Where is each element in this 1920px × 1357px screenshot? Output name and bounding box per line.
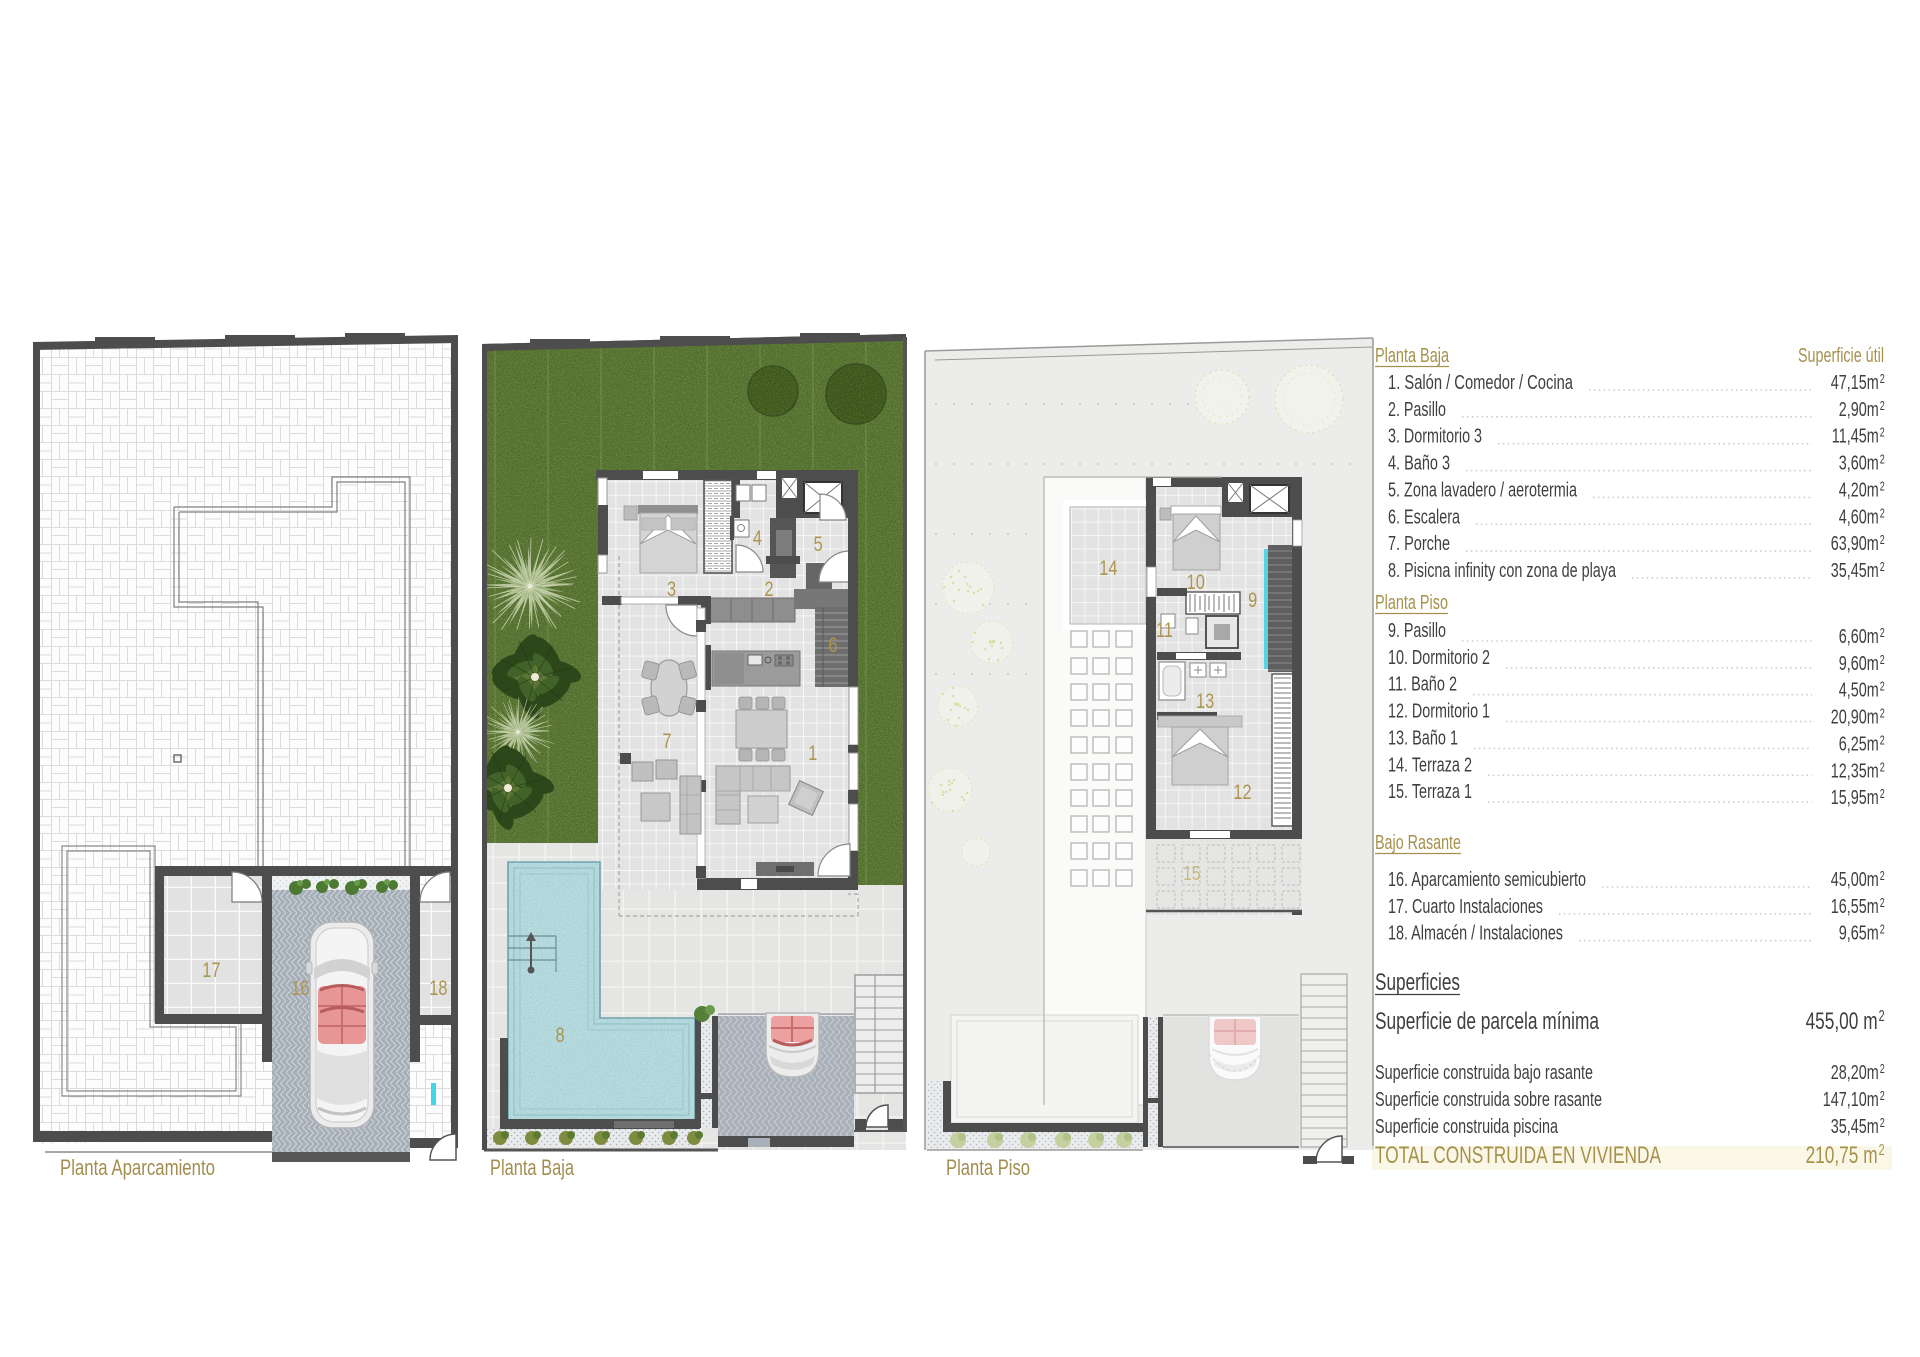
svg-text:7: 7 xyxy=(662,729,671,752)
svg-text:8. Pisicna infinity con zona d: 8. Pisicna infinity con zona de playa xyxy=(1388,560,1617,582)
svg-text:28,20m: 28,20m xyxy=(1831,1062,1879,1084)
svg-text:16,55m: 16,55m xyxy=(1831,896,1879,918)
svg-text:4,50m: 4,50m xyxy=(1839,680,1879,702)
svg-text:17: 17 xyxy=(202,958,220,981)
svg-text:2: 2 xyxy=(1880,1061,1885,1076)
svg-text:Planta Baja: Planta Baja xyxy=(1375,345,1450,367)
svg-text:14. Terraza 2: 14. Terraza 2 xyxy=(1388,754,1472,776)
svg-text:1. Salón / Comedor / Cocina: 1. Salón / Comedor / Cocina xyxy=(1388,372,1574,394)
svg-text:2: 2 xyxy=(1880,922,1885,937)
svg-text:35,45m: 35,45m xyxy=(1831,1116,1879,1138)
svg-text:3. Dormitorio 3: 3. Dormitorio 3 xyxy=(1388,426,1482,448)
svg-text:2: 2 xyxy=(1880,532,1885,547)
svg-text:TOTAL CONSTRUIDA EN VIVIENDA: TOTAL CONSTRUIDA EN VIVIENDA xyxy=(1375,1142,1661,1169)
svg-text:2: 2 xyxy=(1880,759,1885,774)
svg-text:2: 2 xyxy=(1880,679,1885,694)
svg-text:9,65m: 9,65m xyxy=(1839,923,1879,945)
svg-text:9: 9 xyxy=(1248,588,1257,611)
svg-text:2: 2 xyxy=(1880,425,1885,440)
svg-text:4,20m: 4,20m xyxy=(1839,479,1879,501)
svg-text:18. Almacén / Instalaciones: 18. Almacén / Instalaciones xyxy=(1388,923,1563,945)
svg-text:2: 2 xyxy=(1879,1142,1885,1159)
svg-text:16. Aparcamiento semicubierto: 16. Aparcamiento semicubierto xyxy=(1388,869,1586,891)
svg-text:Bajo Rasante: Bajo Rasante xyxy=(1375,832,1461,854)
svg-text:2: 2 xyxy=(1880,895,1885,910)
svg-text:4,60m: 4,60m xyxy=(1839,506,1879,528)
svg-text:2: 2 xyxy=(1880,398,1885,413)
svg-text:12. Dormitorio 1: 12. Dormitorio 1 xyxy=(1388,701,1490,723)
svg-text:18: 18 xyxy=(429,976,447,999)
svg-text:13: 13 xyxy=(1196,689,1214,712)
svg-text:3,60m: 3,60m xyxy=(1839,453,1879,475)
svg-text:63,90m: 63,90m xyxy=(1831,533,1879,555)
svg-text:6,60m: 6,60m xyxy=(1839,626,1879,648)
svg-text:45,00m: 45,00m xyxy=(1831,869,1879,891)
svg-text:13. Baño 1: 13. Baño 1 xyxy=(1388,727,1458,749)
svg-text:2: 2 xyxy=(1880,868,1885,883)
svg-text:12,35m: 12,35m xyxy=(1831,760,1879,782)
svg-text:16: 16 xyxy=(291,976,309,999)
svg-text:3: 3 xyxy=(667,577,676,600)
svg-text:35,45m: 35,45m xyxy=(1831,560,1879,582)
svg-text:11,45m: 11,45m xyxy=(1832,426,1879,448)
svg-text:2: 2 xyxy=(1880,1115,1885,1130)
svg-text:2: 2 xyxy=(1880,371,1885,386)
svg-text:147,10m: 147,10m xyxy=(1823,1089,1879,1111)
svg-text:17. Cuarto Instalaciones: 17. Cuarto Instalaciones xyxy=(1388,896,1543,918)
svg-text:47,15m: 47,15m xyxy=(1831,372,1879,394)
svg-text:455,00 m: 455,00 m xyxy=(1806,1008,1878,1035)
svg-text:2: 2 xyxy=(1880,732,1885,747)
svg-text:2. Pasillo: 2. Pasillo xyxy=(1388,399,1446,421)
svg-text:2: 2 xyxy=(1880,559,1885,574)
svg-text:15,95m: 15,95m xyxy=(1831,787,1879,809)
svg-text:2,90m: 2,90m xyxy=(1839,399,1879,421)
svg-text:11. Baño 2: 11. Baño 2 xyxy=(1388,674,1457,696)
svg-text:2: 2 xyxy=(765,577,774,600)
svg-text:12: 12 xyxy=(1233,780,1251,803)
svg-text:2: 2 xyxy=(1879,1008,1885,1025)
svg-text:9. Pasillo: 9. Pasillo xyxy=(1388,620,1446,642)
svg-text:10. Dormitorio 2: 10. Dormitorio 2 xyxy=(1388,647,1490,669)
svg-text:6: 6 xyxy=(828,633,837,656)
svg-text:Planta Baja: Planta Baja xyxy=(490,1155,575,1180)
svg-text:2: 2 xyxy=(1880,452,1885,467)
svg-text:6,25m: 6,25m xyxy=(1839,733,1879,755)
svg-text:4: 4 xyxy=(753,526,762,549)
svg-text:6. Escalera: 6. Escalera xyxy=(1388,506,1461,528)
svg-text:20,90m: 20,90m xyxy=(1831,707,1879,729)
svg-text:Planta Piso: Planta Piso xyxy=(1375,592,1448,614)
svg-text:2: 2 xyxy=(1880,505,1885,520)
svg-text:2: 2 xyxy=(1880,478,1885,493)
svg-text:Superficie construida bajo ras: Superficie construida bajo rasante xyxy=(1375,1062,1593,1084)
svg-text:Planta Aparcamiento: Planta Aparcamiento xyxy=(60,1155,215,1180)
svg-text:2: 2 xyxy=(1880,652,1885,667)
svg-text:2: 2 xyxy=(1880,625,1885,640)
svg-text:1: 1 xyxy=(808,741,817,764)
svg-text:Planta Piso: Planta Piso xyxy=(946,1155,1030,1180)
svg-text:210,75 m: 210,75 m xyxy=(1806,1142,1878,1169)
svg-text:Superficie útil: Superficie útil xyxy=(1798,345,1884,367)
svg-text:14: 14 xyxy=(1099,556,1117,579)
svg-text:Superficies: Superficies xyxy=(1375,969,1460,996)
svg-text:Superficie construida piscina: Superficie construida piscina xyxy=(1375,1116,1559,1138)
svg-text:15. Terraza 1: 15. Terraza 1 xyxy=(1388,781,1472,803)
svg-text:2: 2 xyxy=(1880,786,1885,801)
svg-text:10: 10 xyxy=(1187,570,1205,593)
svg-text:11: 11 xyxy=(1156,618,1173,641)
svg-text:8: 8 xyxy=(555,1023,564,1046)
svg-text:5. Zona lavadero / aerotermia: 5. Zona lavadero / aerotermia xyxy=(1388,479,1578,501)
svg-text:4. Baño 3: 4. Baño 3 xyxy=(1388,453,1450,475)
svg-text:5: 5 xyxy=(814,532,823,555)
svg-text:15: 15 xyxy=(1183,862,1200,884)
svg-text:Superficie de parcela mínima: Superficie de parcela mínima xyxy=(1375,1008,1599,1035)
svg-text:9,60m: 9,60m xyxy=(1839,653,1879,675)
svg-text:7. Porche: 7. Porche xyxy=(1388,533,1450,555)
svg-text:2: 2 xyxy=(1880,1088,1885,1103)
svg-text:Superficie construida sobre ra: Superficie construida sobre rasante xyxy=(1375,1089,1602,1111)
svg-text:2: 2 xyxy=(1880,706,1885,721)
